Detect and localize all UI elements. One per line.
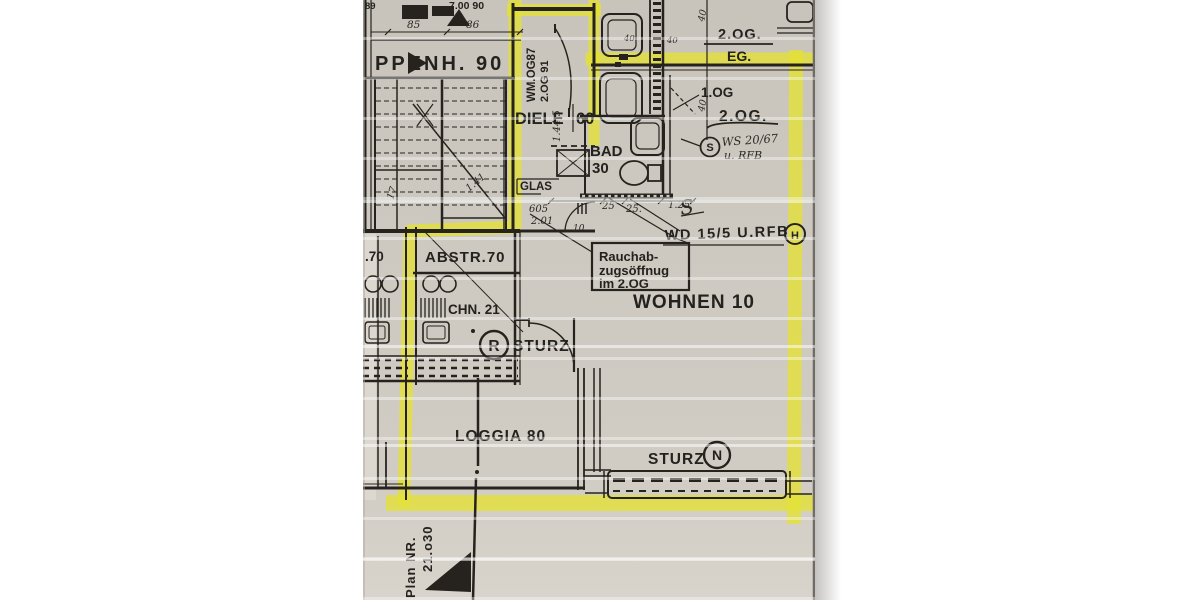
r-marker: R: [488, 338, 499, 355]
wall-block: [402, 5, 428, 19]
loggia-right-wall: [578, 368, 611, 490]
s-marker: S: [706, 142, 713, 154]
dim-605: 605: [529, 204, 548, 215]
sturz-n-beam: STURZ N: [585, 442, 812, 498]
plan-paper-sheet: 89 7.00 90 85 86 PPENH. 90: [363, 0, 815, 600]
room-label-diele: DIELE: [515, 110, 564, 128]
dim-40b: 40: [666, 36, 678, 46]
stairwell: PPENH. 90: [363, 0, 520, 232]
sturz-label-2: STURZ: [648, 451, 705, 468]
h-marker: H: [791, 230, 799, 242]
ws-note-line1: WS 20/67: [721, 131, 779, 149]
dim-25a: 25: [601, 201, 615, 212]
room-label-wohnen: WOHNEN 10: [633, 292, 755, 313]
hand-s: S: [678, 194, 695, 220]
floor-plan-drawing: 89 7.00 90 85 86 PPENH. 90: [363, 0, 815, 600]
plan-no-label: Plan NR.: [403, 537, 418, 598]
leader-line: [681, 139, 700, 146]
wall-block: [432, 6, 454, 16]
stair-run-diagonal: [413, 104, 505, 218]
room-label-bad: BAD: [590, 143, 623, 160]
label-glas: GLAS: [520, 181, 552, 193]
neighbor-tub-icon: [787, 2, 813, 22]
room-label-treppenhaus: PPENH. 90: [375, 53, 504, 75]
room-label-abstellraum: ABSTR.70: [425, 249, 506, 266]
n-marker: N: [712, 447, 722, 463]
dim-700-90: 7.00 90: [449, 0, 484, 12]
leader-line: [673, 95, 699, 110]
dim-40a: 40: [623, 34, 635, 44]
ws-note-line2: u. RFB: [724, 149, 762, 162]
sturz-label-1: STURZ: [513, 338, 570, 355]
faucet-icon: [619, 54, 628, 60]
leader-line: [607, 197, 674, 237]
ref-dot: [471, 329, 475, 333]
highlight-right-wall: [794, 57, 796, 517]
dim-141: 1.41: [464, 172, 488, 195]
rauch-line1: Rauchab-: [599, 249, 658, 264]
level-og2-top: 2.OG.: [718, 27, 762, 43]
rauch-line3: im 2.OG: [599, 276, 649, 291]
bad-room: BAD 30: [580, 0, 813, 196]
plan-number: Plan NR. 21.o30: [403, 526, 471, 598]
smoke-vent-note: Rauchab- zugsöffnug im 2.OG: [530, 214, 689, 291]
dim-17: 17: [385, 185, 400, 201]
dim-85: 85: [407, 19, 421, 31]
sink-basin: [427, 326, 445, 339]
stove-burner-icon: [440, 276, 456, 292]
dim-10: 10: [573, 224, 585, 234]
dim-og91: 2.OG 91: [539, 60, 551, 102]
photo-edge-shadow: [815, 0, 841, 600]
paper-left-edge: [363, 0, 365, 600]
room-area-bad: 30: [592, 160, 609, 177]
floor-plan-photo: 89 7.00 90 85 86 PPENH. 90: [0, 0, 1200, 600]
radiator-hatch: [421, 298, 445, 318]
lintel-beam: [608, 471, 786, 498]
toilet-icon: [620, 161, 661, 185]
stove-burner-icon: [423, 276, 439, 292]
level-og1: 1.OG: [701, 85, 733, 100]
dim-86: 86: [466, 19, 480, 31]
divider-dot: [475, 470, 479, 474]
dim-wm-og87: WM.OG87: [526, 48, 538, 102]
level-eg: EG.: [727, 48, 751, 64]
neighbor-room-area: .70: [365, 249, 384, 264]
bathtub-icon: [602, 14, 642, 56]
dim-89: 89: [365, 1, 376, 12]
radiator-hatch: [365, 298, 389, 318]
room-label-kueche: CHN. 21: [448, 302, 500, 317]
plan-no-value: 21.o30: [420, 526, 435, 572]
stove-burner-icon: [382, 276, 398, 292]
wall-hatch-band: [363, 360, 518, 376]
underline-swoosh: [707, 123, 778, 128]
door-opening-ticks: [578, 203, 586, 214]
top-dimensions: 89 7.00 90 85 86: [365, 0, 523, 40]
dashed-leader: [671, 88, 695, 114]
room-label-loggia: LOGGIA 80: [455, 428, 546, 445]
door-swing-arc: [555, 28, 571, 112]
